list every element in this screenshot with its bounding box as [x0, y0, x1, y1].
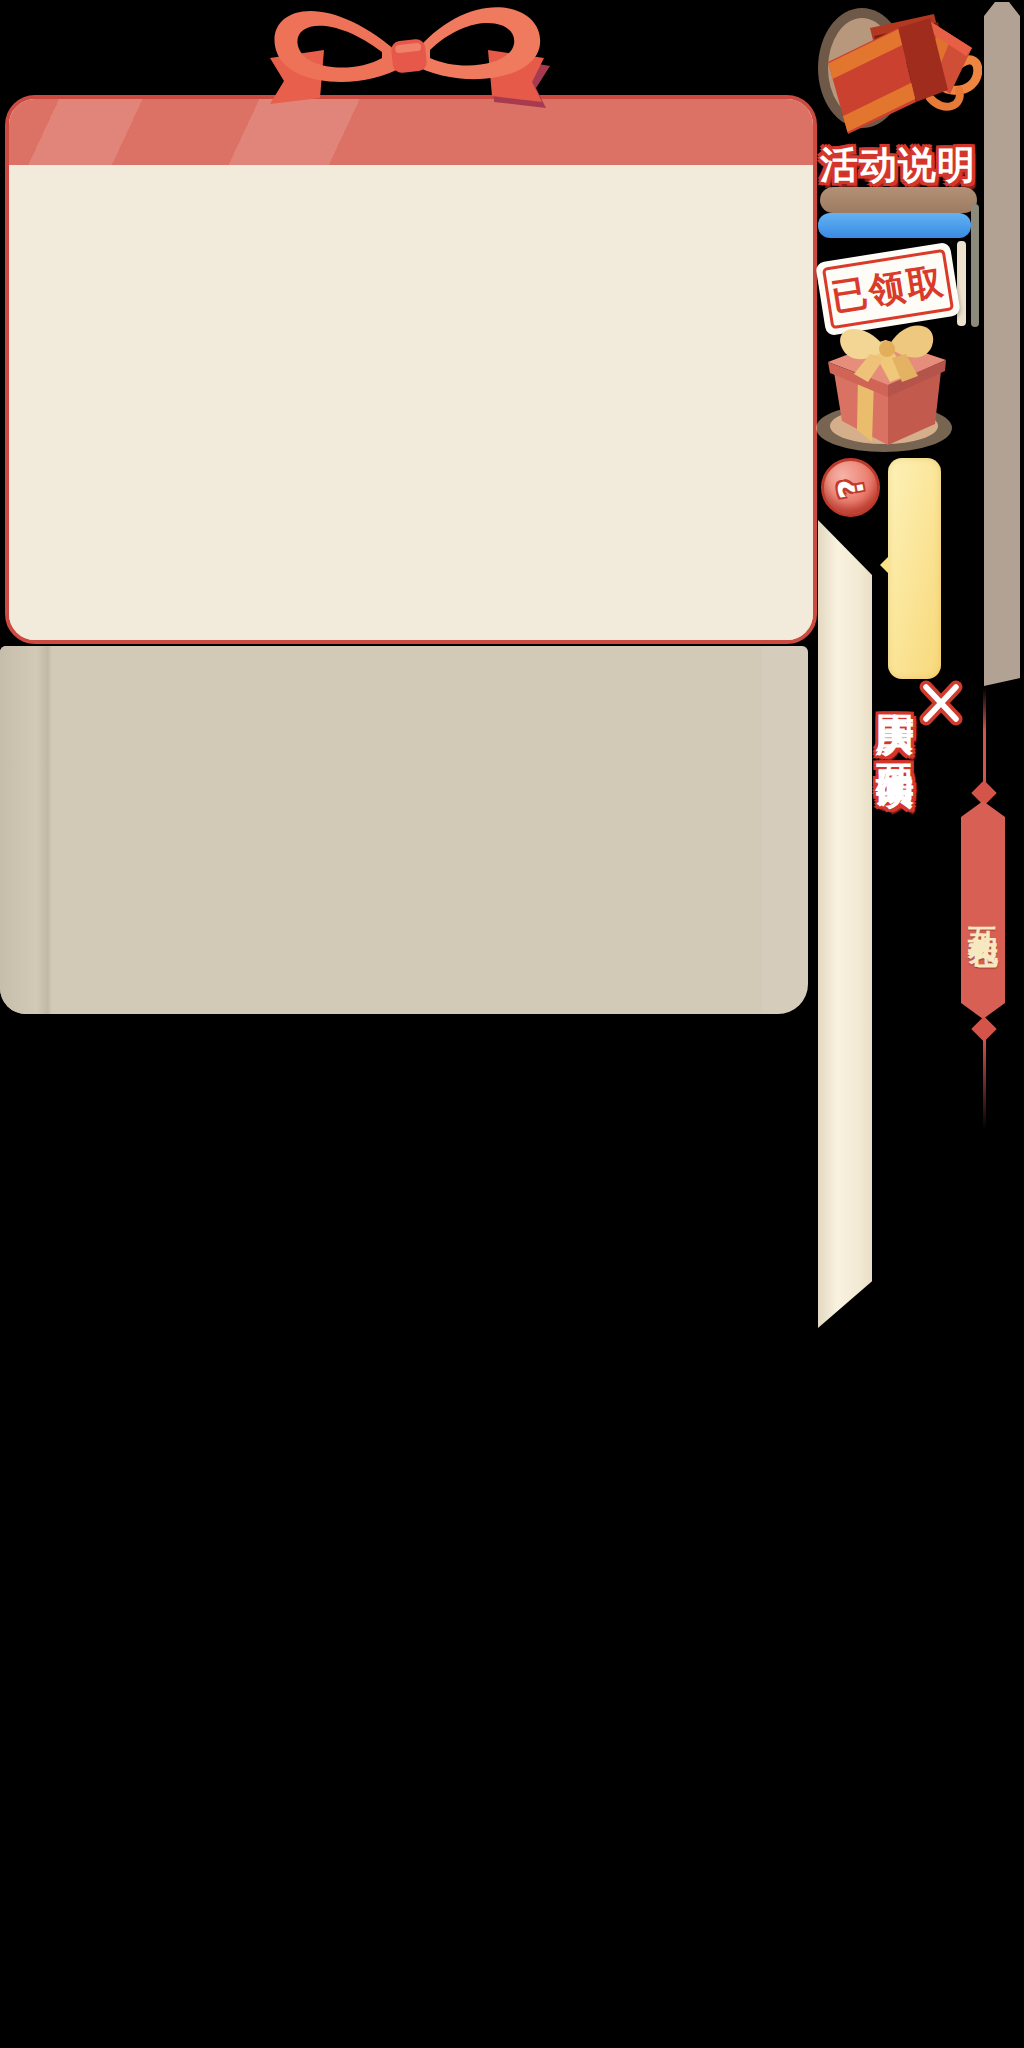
- scroll-tab[interactable]: [888, 458, 941, 679]
- banner-line-top: [983, 688, 986, 782]
- panel-right-sheen: [762, 646, 808, 1014]
- close-button[interactable]: [917, 680, 965, 726]
- bookmark-ribbon: [818, 520, 872, 1328]
- banner-label: 互动大礼包: [961, 903, 1005, 918]
- help-button[interactable]: ?: [821, 458, 880, 517]
- scrollbar-thumb[interactable]: [957, 241, 966, 326]
- closed-gift-icon[interactable]: [812, 318, 962, 454]
- progress-bar-brown: [820, 187, 977, 213]
- right-scrollbar[interactable]: [984, 2, 1020, 686]
- event-screen: 活动说明 已领取 ? 庆国庆 互动大回: [0, 0, 1024, 2048]
- open-gift-icon: [812, 2, 982, 138]
- close-icon: [926, 687, 956, 719]
- panel-left-seam: [0, 646, 52, 1014]
- activity-description-button[interactable]: 活动说明: [810, 0, 986, 190]
- progress-bar-blue: [818, 213, 971, 238]
- content-panel: [0, 646, 808, 1014]
- card-body: [9, 165, 813, 640]
- vertical-event-title: 庆国庆 互动大回馈: [872, 682, 918, 1027]
- event-card: [5, 95, 817, 644]
- question-icon: ?: [829, 474, 872, 500]
- claimed-stamp-text: 已领取: [828, 256, 948, 322]
- ribbon-banner: 互动大礼包: [961, 801, 1005, 1019]
- activity-description-label: 活动说明: [810, 140, 986, 191]
- card-header-ribbon: [9, 99, 813, 165]
- gift-bow-icon: [262, 0, 554, 108]
- banner-line-bottom: [983, 1038, 986, 1130]
- scrollbar-track: [971, 204, 979, 327]
